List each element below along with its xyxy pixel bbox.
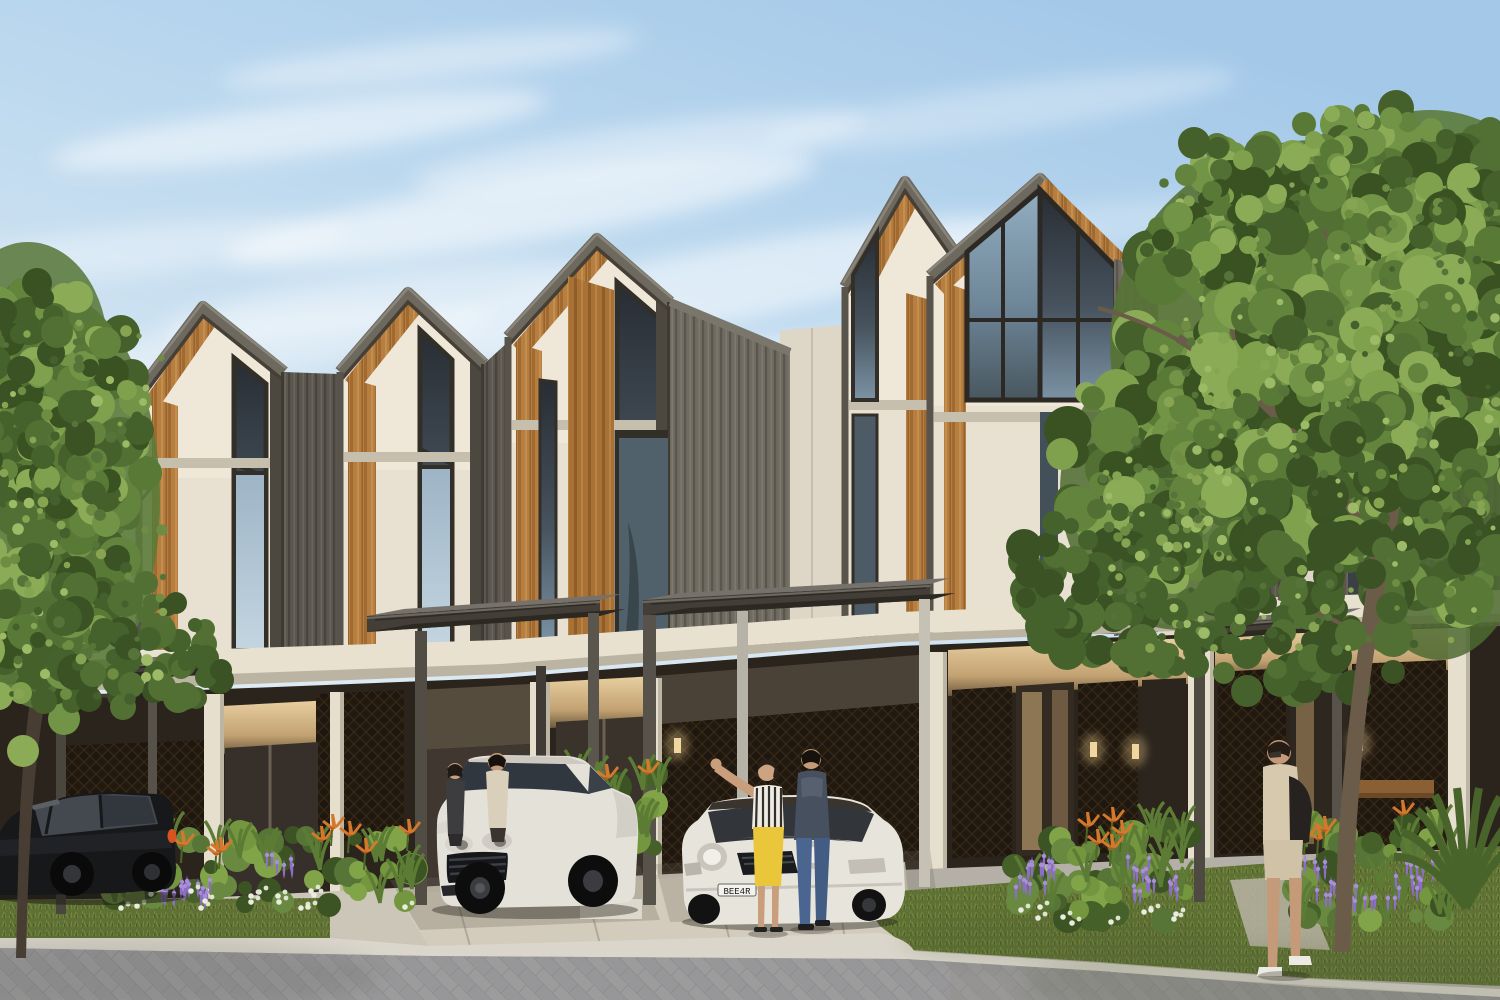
svg-text:BEE4R: BEE4R — [723, 887, 751, 897]
